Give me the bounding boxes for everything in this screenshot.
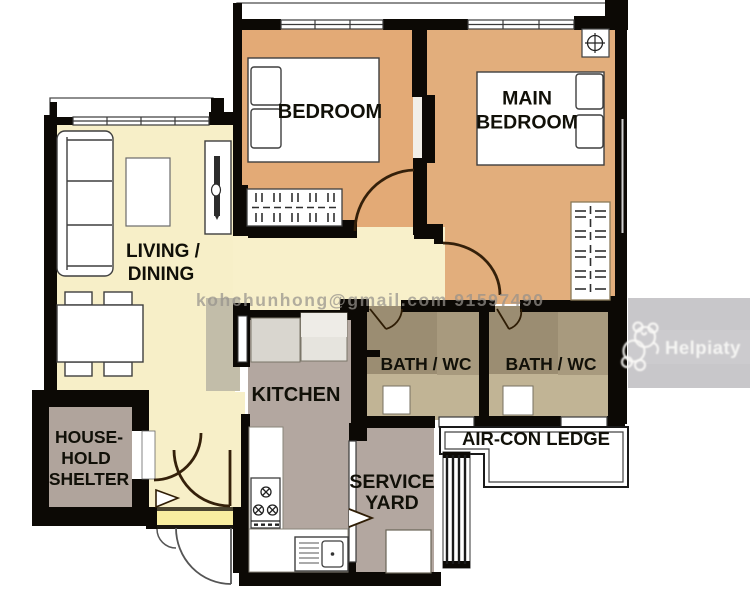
svg-text:LIVING /: LIVING / <box>126 241 201 262</box>
svg-text:kohchunhong@gmail.com 91597490: kohchunhong@gmail.com 91597490 <box>196 290 545 310</box>
svg-text:BATH / WC: BATH / WC <box>505 354 596 374</box>
svg-text:SERVICE: SERVICE <box>349 471 434 493</box>
svg-text:KITCHEN: KITCHEN <box>252 384 341 406</box>
svg-text:BEDROOM: BEDROOM <box>476 112 578 134</box>
svg-text:AIR-CON LEDGE: AIR-CON LEDGE <box>462 428 610 449</box>
svg-text:Helpiaty: Helpiaty <box>665 337 741 358</box>
svg-text:SHELTER: SHELTER <box>49 469 130 489</box>
svg-text:MAIN: MAIN <box>502 88 552 110</box>
svg-text:BEDROOM: BEDROOM <box>278 101 382 123</box>
svg-text:DINING: DINING <box>128 264 195 285</box>
svg-text:HOLD: HOLD <box>61 448 111 468</box>
svg-text:BATH / WC: BATH / WC <box>380 354 471 374</box>
svg-text:HOUSE-: HOUSE- <box>55 427 123 447</box>
svg-text:YARD: YARD <box>365 492 418 514</box>
